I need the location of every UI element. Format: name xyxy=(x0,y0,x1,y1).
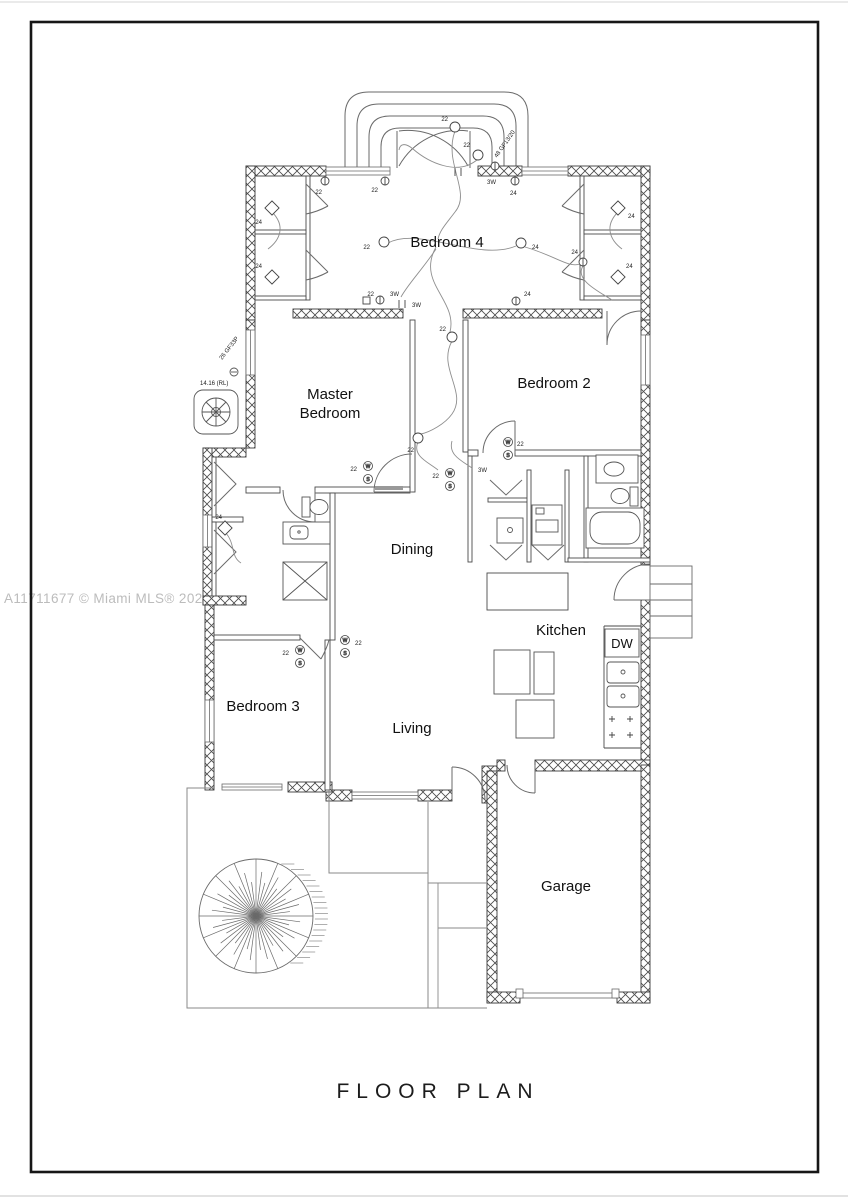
electrical-symbols xyxy=(218,122,625,535)
mls-watermark: A11711677 © Miami MLS® 2025 xyxy=(4,591,211,606)
garage-door-sill xyxy=(516,989,619,998)
fixtures xyxy=(283,455,644,738)
pantry-cabinet xyxy=(516,700,554,738)
breezeway-door xyxy=(452,767,485,800)
bedroom2-closet-door xyxy=(607,311,641,345)
bedroom2-door xyxy=(483,421,515,453)
label-3w: 3W xyxy=(487,180,496,186)
fridge xyxy=(494,650,554,694)
label-22: 22 xyxy=(463,143,470,149)
entry-arches xyxy=(345,92,528,168)
washer-dryer xyxy=(532,505,562,545)
kitchen-side-door xyxy=(614,564,650,600)
label-22: 22 xyxy=(407,448,414,454)
switch-w: W xyxy=(343,638,348,644)
garage-interior-door xyxy=(507,765,535,793)
label-3w: 3W xyxy=(390,292,399,298)
label-24: 24 xyxy=(255,264,262,270)
label-24: 24 xyxy=(626,264,633,270)
stove xyxy=(609,716,633,738)
kitchen-sink xyxy=(607,662,639,707)
label-22: 22 xyxy=(371,188,378,194)
window-bedroom2-right xyxy=(641,335,650,385)
switch-w: W xyxy=(366,464,371,470)
room-label-bedroom3: Bedroom 3 xyxy=(226,698,299,715)
label-22: 22 xyxy=(315,190,322,196)
electrical-wires xyxy=(225,131,622,563)
diamond-lights xyxy=(218,201,625,535)
room-label-master-2: Bedroom xyxy=(300,405,361,422)
label-22: 22 xyxy=(441,117,448,123)
room-label-garage: Garage xyxy=(541,878,591,895)
floor-plan-drawing: A11711677 © Miami MLS® 2025 xyxy=(0,0,848,1200)
label-22: 22 xyxy=(432,474,439,480)
window-bedroom3-left xyxy=(205,700,214,742)
light-entry xyxy=(450,122,460,132)
panel-label-entry: 48 GF13/20 xyxy=(494,129,517,159)
label-24: 24 xyxy=(215,515,222,521)
pocket-door xyxy=(375,486,403,490)
floor-plan-page: A11711677 © Miami MLS® 2025 xyxy=(0,0,848,1200)
label-22: 22 xyxy=(282,651,289,657)
panel-label-rl: 14.16 (RL) xyxy=(200,381,228,387)
label-24: 24 xyxy=(571,250,578,256)
room-label-bedroom4: Bedroom 4 xyxy=(410,234,483,251)
label-24: 24 xyxy=(532,245,539,251)
label-22: 22 xyxy=(350,467,357,473)
panel-label-main: 26 GF33P xyxy=(219,336,241,361)
label-dishwasher: DW xyxy=(611,636,633,651)
label-22: 22 xyxy=(367,292,374,298)
tree xyxy=(199,859,328,973)
drawing-title: FLOOR PLAN xyxy=(336,1080,539,1103)
label-3w: 3W xyxy=(412,303,421,309)
light-hall-bottom xyxy=(413,433,423,443)
room-label-master-1: Master xyxy=(307,386,353,403)
label-3w: 3W xyxy=(478,468,487,474)
room-label-dining: Dining xyxy=(391,541,434,558)
vanity-master xyxy=(283,522,330,544)
patio-outline xyxy=(187,788,428,1008)
window-bedroom3-bottom xyxy=(222,784,282,790)
switch-w: W xyxy=(298,648,303,654)
window-bathwing-left xyxy=(203,515,212,547)
side-steps xyxy=(650,566,692,638)
switch-w: W xyxy=(506,440,511,446)
ac-fan-unit xyxy=(194,368,238,434)
tub-bath2 xyxy=(586,508,644,548)
room-label-kitchen: Kitchen xyxy=(536,622,586,639)
walkway xyxy=(428,883,487,1008)
label-22: 22 xyxy=(517,442,524,448)
light-bedroom4-center xyxy=(379,237,389,247)
label-24: 24 xyxy=(255,220,262,226)
light-entry-2 xyxy=(473,150,483,160)
label-24: 24 xyxy=(524,292,531,298)
label-22: 22 xyxy=(439,327,446,333)
light-bedroom4-right xyxy=(516,238,526,248)
window-master-left xyxy=(246,330,255,375)
shower-master xyxy=(283,562,327,600)
label-24: 24 xyxy=(628,214,635,220)
label-22: 22 xyxy=(363,245,370,251)
label-24: 24 xyxy=(510,191,517,197)
toilet-bath2 xyxy=(611,487,638,506)
vanity-bath2 xyxy=(596,455,638,483)
window-top-left xyxy=(326,167,390,175)
label-22: 22 xyxy=(355,641,362,647)
switch-w: W xyxy=(448,471,453,477)
room-label-living: Living xyxy=(392,720,431,737)
hall-cabinet xyxy=(497,518,523,543)
window-living-bottom xyxy=(352,792,418,799)
toilet-master xyxy=(302,497,328,517)
room-label-bedroom2: Bedroom 2 xyxy=(517,375,590,392)
light-hall-top xyxy=(447,332,457,342)
window-top-right xyxy=(522,167,568,175)
